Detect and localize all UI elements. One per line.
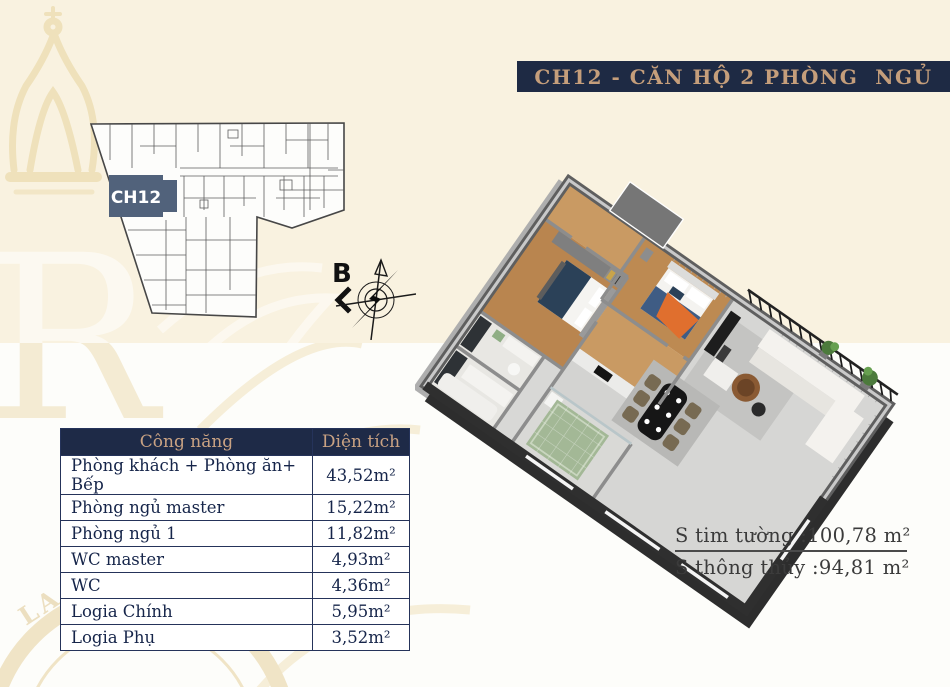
room-area: 5,95m² — [313, 599, 410, 625]
area-summary-line1: S tim tường :100,78 m² — [675, 524, 911, 547]
title-banner: CH12 - CĂN HỘ 2 PHÒNG NGỦ — [517, 61, 950, 92]
area-summary: S tim tường :100,78 m² S thông thủy :94,… — [675, 524, 911, 579]
room-name: Phòng khách + Phòng ăn+ Bếp — [61, 456, 313, 495]
table-row: Phòng khách + Phòng ăn+ Bếp 43,52m² — [61, 456, 410, 495]
area-summary-line2: S thông thủy :94,81 m² — [675, 556, 911, 579]
summary-divider — [675, 550, 907, 552]
compass-north-label: B — [332, 259, 352, 289]
room-area: 4,36m² — [313, 573, 410, 599]
brochure-page: R R LA CH12 - CĂN HỘ 2 PHÒNG NGỦ — [0, 0, 950, 687]
room-area: 4,93m² — [313, 547, 410, 573]
room-name: WC master — [61, 547, 313, 573]
table-row: Phòng ngủ master 15,22m² — [61, 495, 410, 521]
unit-label: CH12 — [111, 188, 161, 208]
table-row: WC master 4,93m² — [61, 547, 410, 573]
room-name: Phòng ngủ master — [61, 495, 313, 521]
compass-needle — [352, 270, 398, 328]
room-name: Logia Chính — [61, 599, 313, 625]
page-title: CH12 - CĂN HỘ 2 PHÒNG NGỦ — [534, 65, 932, 89]
compass-icon: B — [326, 254, 416, 340]
chevron-left-icon — [338, 290, 348, 310]
unit-highlight: CH12 — [109, 175, 177, 217]
room-area: 43,52m² — [313, 456, 410, 495]
area-spec-table: Công năng Diện tích Phòng khách + Phòng … — [60, 428, 410, 651]
room-area: 15,22m² — [313, 495, 410, 521]
table-row: Logia Phụ 3,52m² — [61, 625, 410, 651]
table-header-area: Diện tích — [313, 429, 410, 456]
room-name: Phòng ngủ 1 — [61, 521, 313, 547]
table-row: Logia Chính 5,95m² — [61, 599, 410, 625]
room-name: Logia Phụ — [61, 625, 313, 651]
table-header-function: Công năng — [61, 429, 313, 456]
table-row: Phòng ngủ 1 11,82m² — [61, 521, 410, 547]
table-row: WC 4,36m² — [61, 573, 410, 599]
room-area: 11,82m² — [313, 521, 410, 547]
room-area: 3,52m² — [313, 625, 410, 651]
room-name: WC — [61, 573, 313, 599]
